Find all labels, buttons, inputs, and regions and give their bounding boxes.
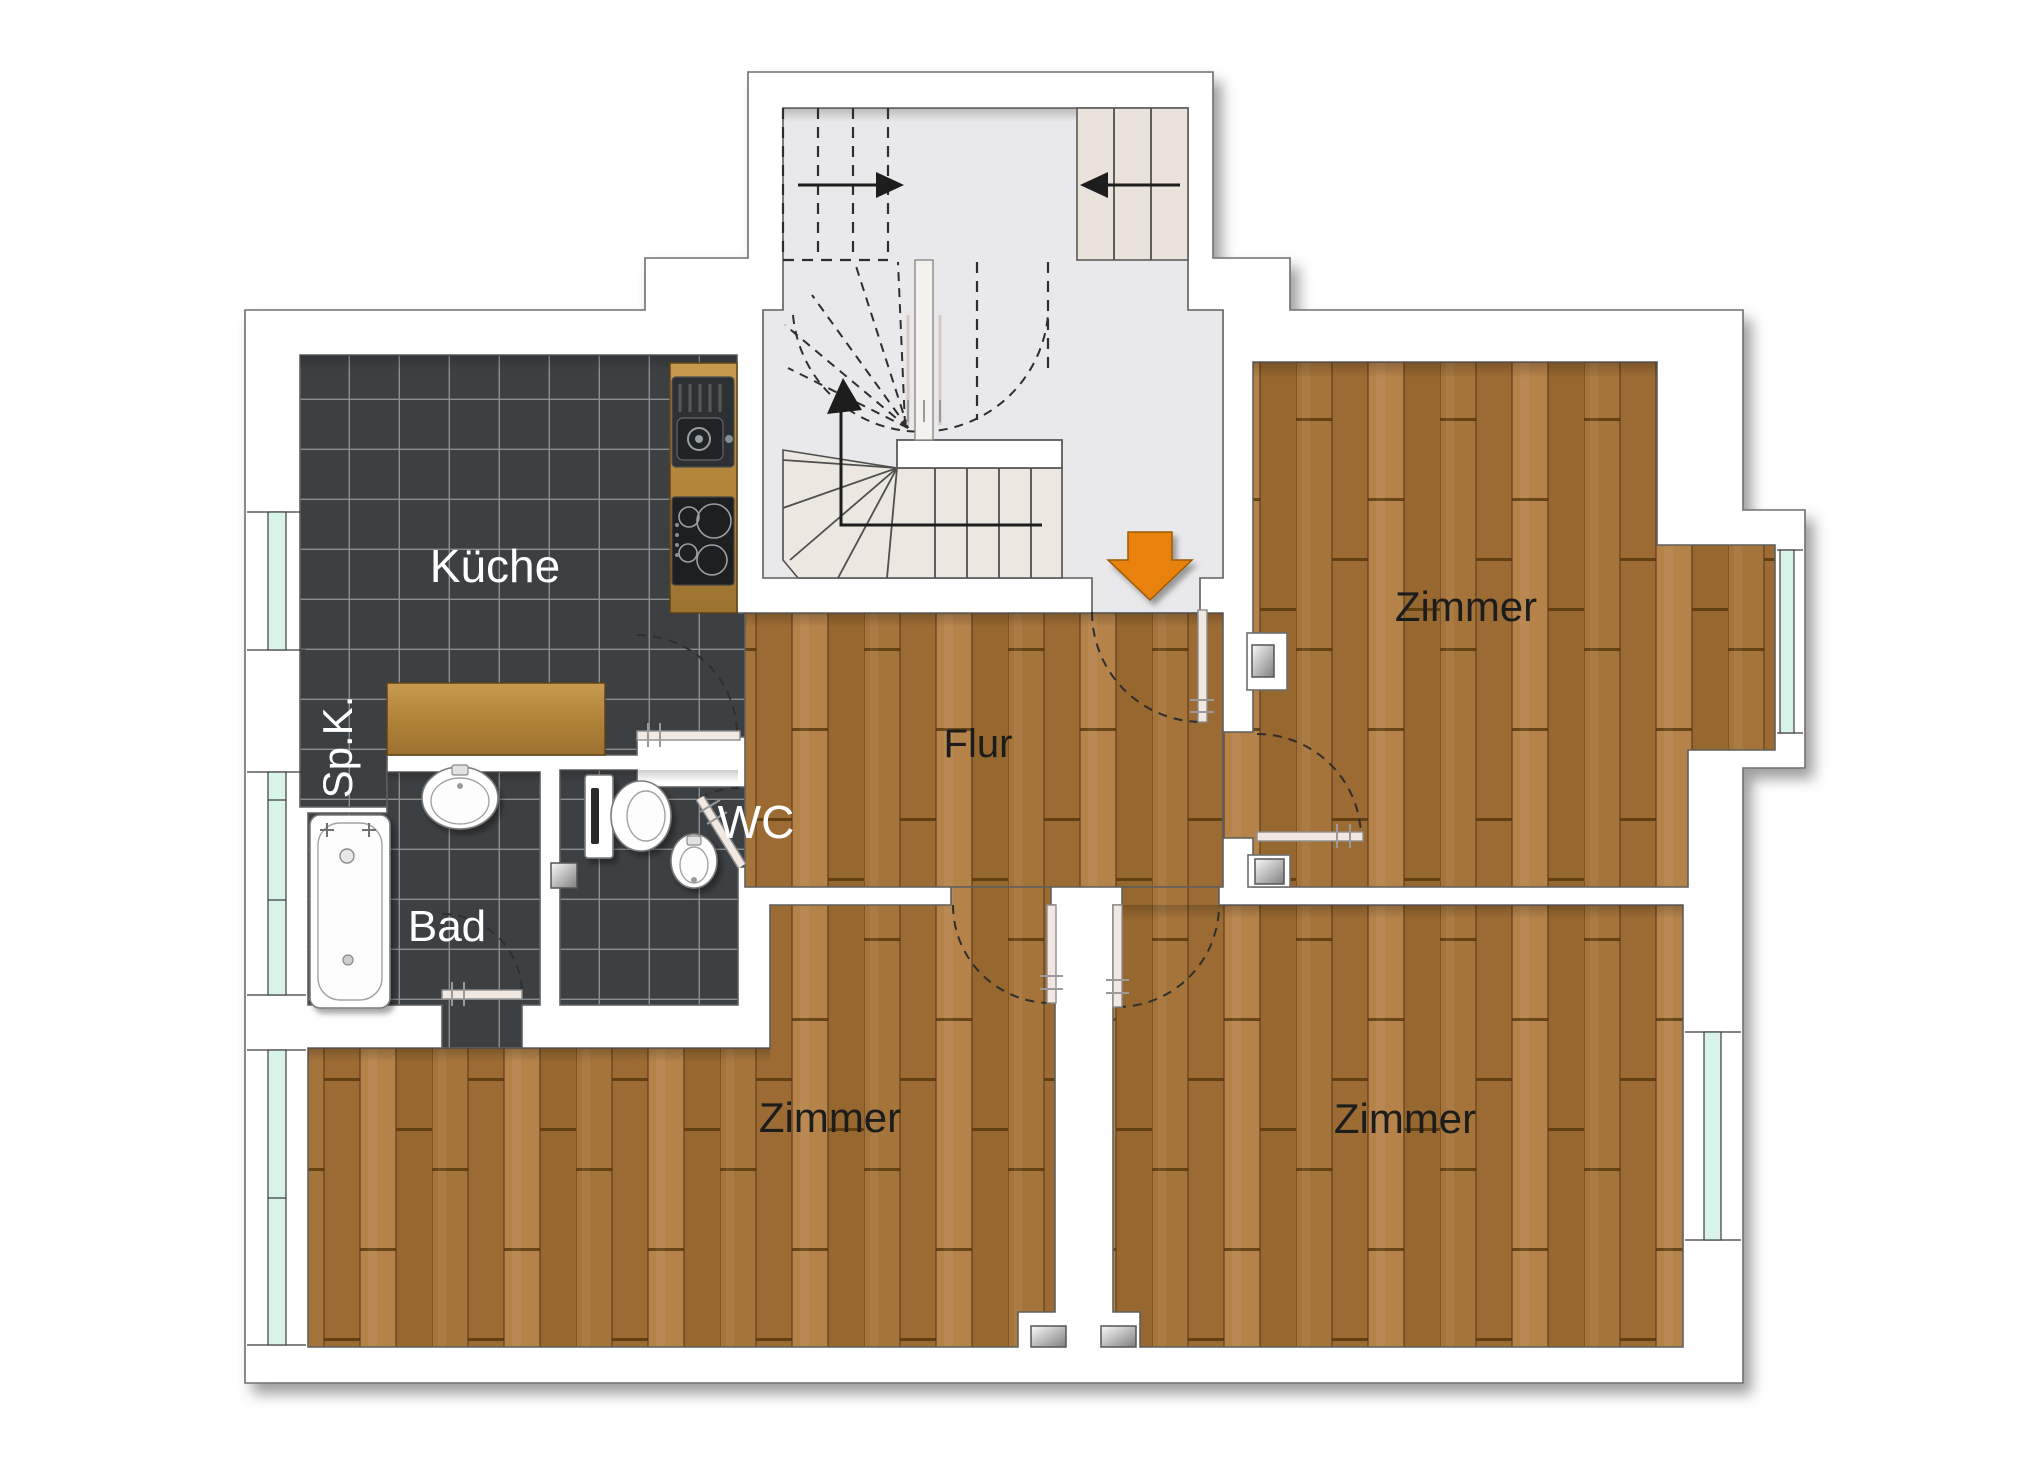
label-hall: Flur [944,722,1013,766]
label-pantry: Sp.K. [314,696,361,799]
label-room-bottom-left: Zimmer [759,1094,901,1141]
kitchen-counter [670,363,737,613]
label-wc: WC [718,796,795,848]
label-bath: Bad [408,902,486,951]
kitchen-stove [672,497,734,585]
stair-landing-edge [897,440,1062,468]
stair-winder-treads [783,450,1062,578]
label-room-top-right: Zimmer [1395,583,1537,630]
chimney-flue [1248,855,1290,887]
floorplan-page: Küche Sp.K. Bad WC Flur Zimmer Zimmer Zi… [0,0,2025,1469]
chimney-flue [545,858,580,890]
chimney-flue [1247,633,1287,690]
kitchen-sink [672,377,734,467]
floorplan-drawing: Küche Sp.K. Bad WC Flur Zimmer Zimmer Zi… [0,0,2025,1469]
toilet [585,775,671,858]
label-room-bottom-right: Zimmer [1334,1095,1476,1142]
bidet [671,834,717,888]
label-kitchen: Küche [430,540,560,592]
bathtub [310,815,390,1008]
kitchen-island [387,683,605,755]
